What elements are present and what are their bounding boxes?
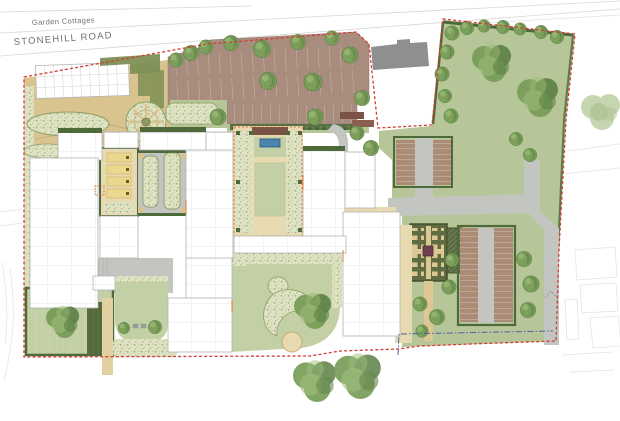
grey-paved-court xyxy=(138,150,186,216)
raised-bed-court xyxy=(100,148,138,216)
stonehill-road-label: STONEHILL ROAD xyxy=(13,30,113,48)
water-feature xyxy=(260,139,280,147)
central-courtyard-garden xyxy=(233,126,303,237)
garden-gate-path xyxy=(102,298,113,375)
context-neighbour-plots xyxy=(560,144,620,372)
formal-grid-garden xyxy=(410,224,447,281)
pergola-canopy xyxy=(252,127,288,135)
glazed-canopy-structure xyxy=(35,62,129,98)
site-plan-canvas: Garden Cottages STONEHILL ROAD xyxy=(0,0,620,421)
garden-centre-feature xyxy=(423,246,433,256)
existing-building xyxy=(371,39,429,70)
circular-patio xyxy=(282,332,302,352)
site-plan-drawing: Garden Cottages STONEHILL ROAD xyxy=(0,0,620,421)
allotment-beds xyxy=(458,226,515,325)
garden-cottages-label: Garden Cottages xyxy=(32,15,95,27)
